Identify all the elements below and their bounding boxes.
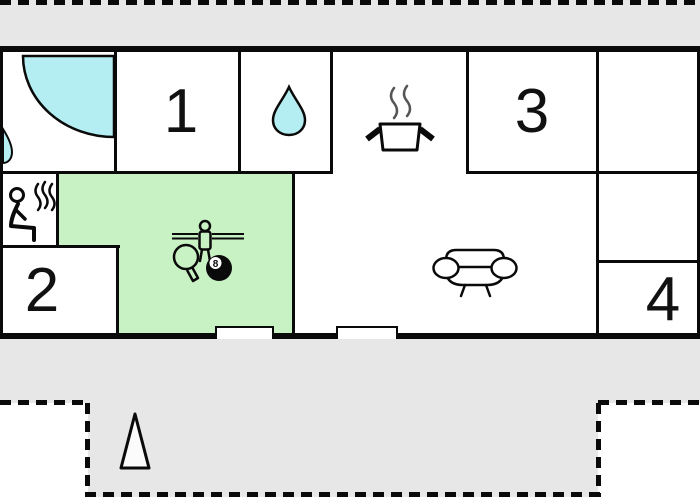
wall-wc-kitchen: [330, 52, 333, 172]
wall-horizontal-left-y172: [0, 171, 333, 174]
room-2-label: 2: [2, 259, 82, 323]
terrace-bottom-main: [88, 403, 598, 497]
games-icons: 8: [168, 218, 248, 290]
room-3-label: 3: [492, 80, 572, 144]
floor-plan-canvas: 8 1 2 3 4: [0, 0, 700, 500]
cooking-pot-icon: [360, 82, 438, 154]
eight-ball-number: 8: [213, 259, 219, 270]
table-tennis-paddle-icon: [174, 245, 198, 281]
wall-room4-top: [596, 260, 700, 263]
sauna-person-icon: [4, 178, 56, 242]
terrace-dashed-right-side: [596, 403, 601, 497]
foosball-player-icon: [172, 221, 244, 261]
terrace-dashed-right-top: [598, 400, 700, 405]
wall-gamesroom-right: [292, 171, 295, 333]
wall-horizontal-right-y172: [466, 171, 700, 174]
steam-line: [404, 86, 410, 116]
tree-icon: [112, 408, 158, 476]
room-4-label: 4: [623, 268, 700, 332]
terrace-dashed-left-top: [0, 400, 90, 405]
wall-room2-right: [116, 245, 119, 333]
room-1-label: 1: [141, 80, 221, 144]
terrace-bottom-strip: [0, 339, 700, 403]
steam-line: [50, 184, 55, 210]
steam-line: [36, 184, 41, 210]
washbasin-drop-icon: [3, 126, 15, 166]
terrace-top: [0, 0, 700, 46]
terrace-dashed-left-side: [85, 403, 90, 497]
steam-line: [43, 182, 48, 208]
wall-kitchen-room3: [466, 52, 469, 172]
shower-icon: [18, 52, 118, 144]
wall-room1-wc: [238, 52, 241, 172]
wall-center-right-vertical: [596, 52, 599, 333]
terrace-dashed-bottom: [85, 492, 601, 497]
sofa-icon: [432, 243, 518, 301]
billiard-eight-ball-icon: 8: [206, 255, 232, 281]
terrace-top-dashed-border: [0, 0, 700, 5]
water-drop-icon: [268, 84, 310, 138]
wall-sauna-right: [56, 171, 59, 248]
steam-line: [391, 88, 397, 118]
wall-sauna-room2: [0, 245, 120, 248]
